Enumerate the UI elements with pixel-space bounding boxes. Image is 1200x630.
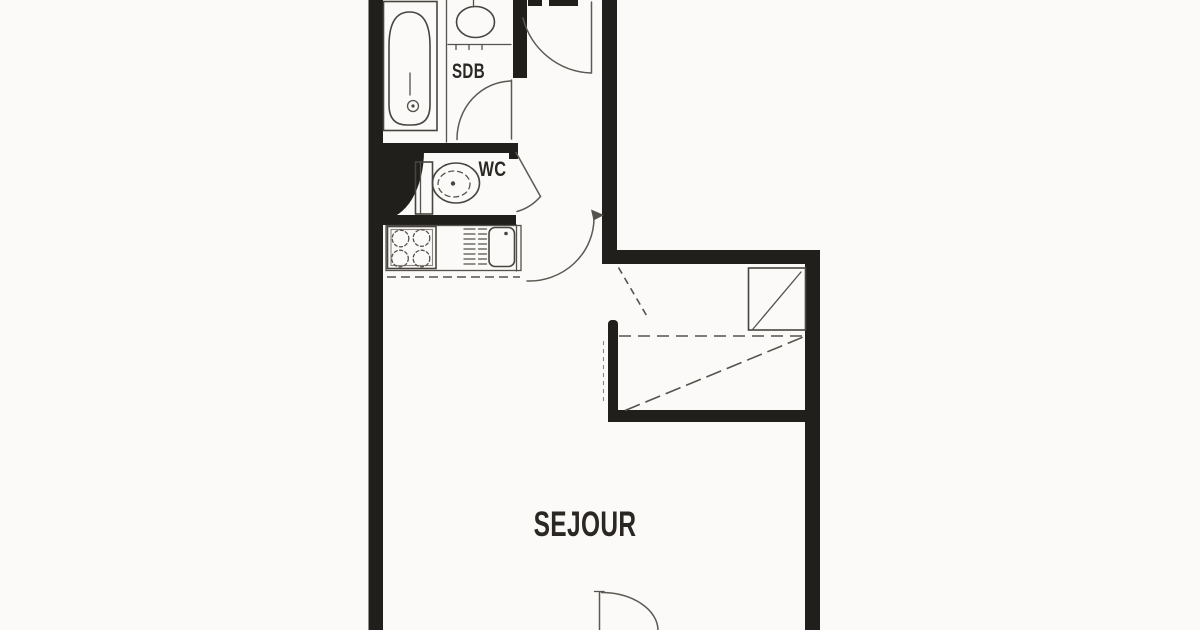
bathtub-drain-dot	[411, 104, 414, 107]
wall-alcove-left-stub	[608, 320, 618, 416]
wall-left-exterior	[369, 0, 384, 630]
bed-alcove	[604, 268, 806, 411]
sink-drainboard-lines	[464, 229, 487, 264]
floor-plan-canvas: SDB WC	[0, 0, 1200, 630]
alcove-dashed-diagonal	[619, 268, 649, 319]
wall-wc-door-jamb	[509, 143, 518, 159]
label-sdb: SDB	[452, 58, 485, 82]
wall-top-strip-1	[528, 0, 542, 6]
sejour-room: SEJOUR	[534, 506, 658, 630]
wc-room: WC	[383, 151, 541, 219]
wall-top-strip-2	[549, 0, 578, 6]
stove-burners-icon	[392, 230, 430, 267]
washbasin-icon	[457, 7, 495, 38]
sdb-door-swing-arc	[457, 81, 511, 140]
wall-hall-right-exterior	[602, 0, 617, 263]
floor-plan-drawing: SDB WC	[0, 0, 1200, 630]
wall-alcove-top	[602, 250, 820, 264]
wall-right-exterior	[805, 250, 820, 630]
kitchen-sink-basin	[489, 228, 515, 267]
toilet-bowl-dot	[451, 181, 455, 185]
vanity-ticks	[456, 45, 482, 50]
bathroom-sdb: SDB	[384, 0, 512, 142]
entry-door-swing-arc	[523, 18, 591, 73]
wall-hall-bathroom	[513, 0, 527, 78]
passage-door	[527, 210, 604, 282]
wall-wc-kitchen-divider	[383, 215, 516, 225]
kitchenette	[386, 225, 521, 277]
bed-headboard-diagonal	[753, 272, 801, 329]
label-sejour: SEJOUR	[534, 506, 637, 544]
wall-alcove-bottom	[608, 410, 806, 422]
kitchen-sink-drain-dot	[504, 232, 508, 236]
label-wc: WC	[479, 158, 507, 182]
entry-hall	[523, 2, 592, 73]
wc-door-swing-filled	[383, 151, 424, 219]
balcony-door-swing-arc	[602, 593, 659, 630]
stove-inner-frame	[391, 230, 433, 266]
bathtub-inner	[389, 12, 430, 125]
wc-door-leaf	[516, 153, 541, 197]
bed-fold-diagonal	[625, 337, 805, 411]
wc-door-swing-arc	[517, 197, 541, 212]
passage-swing-arc	[527, 218, 594, 281]
